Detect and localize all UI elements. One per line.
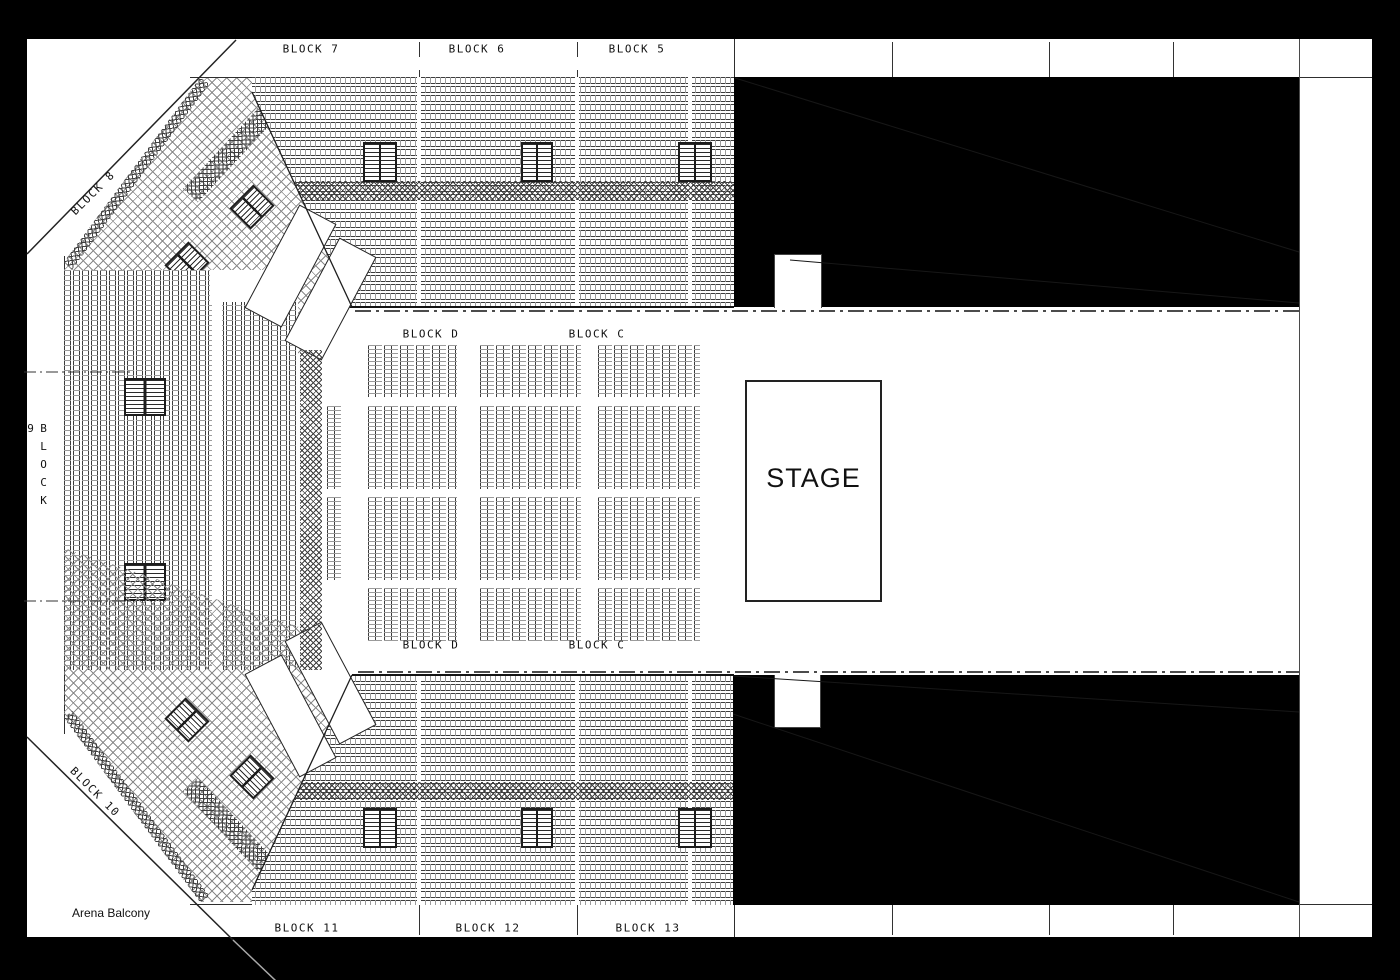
floor-label-block-c-bottom: BLOCK C [569, 639, 626, 652]
stairs [521, 808, 553, 848]
stairs [678, 808, 712, 848]
tier-label-block-9: BLOCK 9 [24, 422, 50, 532]
floor-label-block-c-top: BLOCK C [569, 328, 626, 341]
floor-bank [480, 497, 581, 580]
floor-bank [368, 406, 457, 489]
tick [419, 42, 420, 57]
balcony-edge-line [345, 306, 734, 308]
floor-bank-narrow [327, 497, 342, 580]
arena-balcony-label: Arena Balcony [72, 906, 150, 920]
seating-plan-canvas: STAGE BLOCK 7 BLOCK 6 BLOCK 5 BLOCK 11 B… [0, 0, 1400, 980]
floor-bank [480, 345, 581, 397]
tick [577, 42, 578, 57]
floor-bank [598, 345, 700, 397]
stairs [678, 142, 712, 182]
tier-label-block-12: BLOCK 12 [456, 922, 521, 935]
tick [892, 42, 893, 77]
floor-bank [368, 588, 457, 641]
walkway-hatch [295, 181, 734, 200]
tier-label-block-6: BLOCK 6 [449, 43, 506, 56]
blocked-region-notch [774, 254, 822, 308]
floor-bank [480, 406, 581, 489]
grid-line-x1299 [1299, 39, 1300, 937]
floor-bank [368, 345, 457, 397]
tick [577, 905, 578, 935]
walkway-hatch-vertical [300, 350, 322, 670]
stairs [521, 142, 553, 182]
walkway-hatch [295, 782, 734, 800]
stairs [229, 184, 274, 229]
floor-bank [480, 588, 581, 641]
tier-label-block-13: BLOCK 13 [616, 922, 681, 935]
stairs [229, 754, 274, 799]
tick [1049, 905, 1050, 935]
floor-label-block-d-top: BLOCK D [403, 328, 460, 341]
floor-bank [368, 497, 457, 580]
grid-line-x734-top [734, 39, 735, 78]
stairs [124, 378, 166, 416]
tier-label-block-5: BLOCK 5 [609, 43, 666, 56]
floor-bank [598, 497, 700, 580]
stairs [164, 697, 209, 742]
tier-label-block-11: BLOCK 11 [275, 922, 340, 935]
tick [1049, 42, 1050, 77]
tick [419, 905, 420, 935]
tier-label-block-7: BLOCK 7 [283, 43, 340, 56]
blocked-region-notch [774, 675, 821, 728]
tick [892, 905, 893, 935]
stairs [363, 808, 397, 848]
tick [1173, 42, 1174, 77]
balcony-edge-line [352, 674, 734, 676]
floor-label-block-d-bottom: BLOCK D [403, 639, 460, 652]
tick [1173, 905, 1174, 935]
stage-label: STAGE [766, 463, 861, 494]
floor-bank [598, 588, 700, 641]
grid-line-x734-bottom [734, 904, 735, 937]
stairs [363, 142, 397, 182]
floor-bank-narrow [327, 406, 342, 489]
floor-bank [598, 406, 700, 489]
stage-box: STAGE [745, 380, 882, 602]
